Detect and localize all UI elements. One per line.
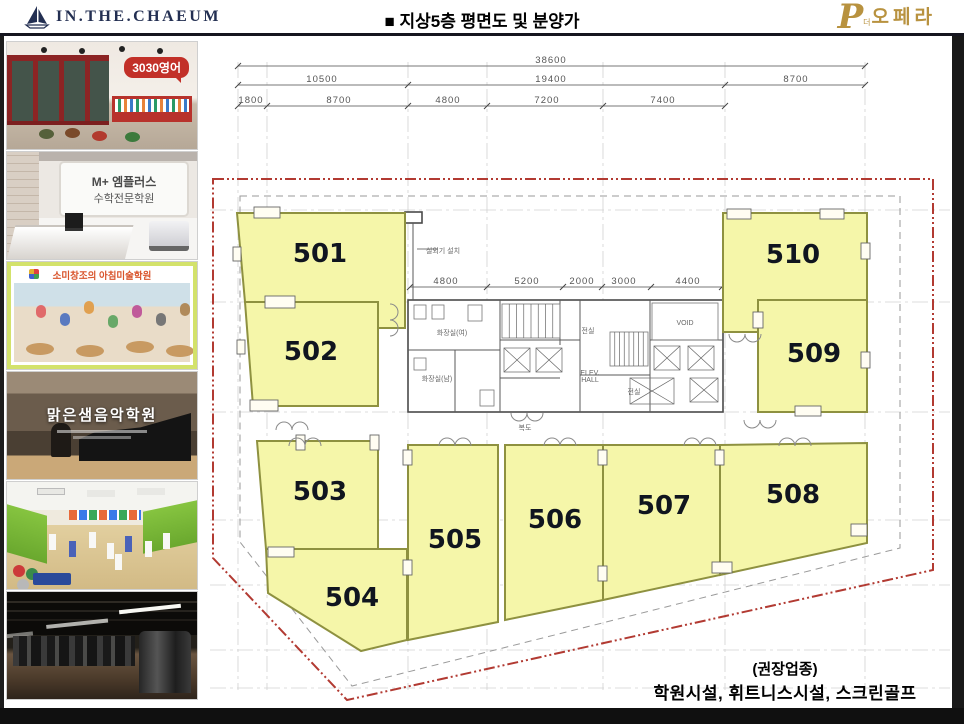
wall-opening — [861, 243, 870, 259]
photo-music-academy: 맑은샘음악학원 — [7, 372, 197, 479]
opera-logo-text: 오페라 — [872, 2, 936, 29]
stools — [65, 128, 80, 138]
unit-507 — [603, 445, 720, 600]
wall-opening — [795, 406, 821, 416]
art-academy-sign: 소미창조의 아침미술학원 — [11, 268, 193, 282]
wall-opening — [296, 435, 305, 450]
dimension-value: 10500 — [306, 74, 337, 85]
photo-taekwondo-studio — [7, 482, 197, 589]
music-academy-sign: 맑은샘음악학원 — [7, 404, 197, 425]
wall-opening — [753, 312, 763, 328]
tables — [26, 343, 54, 355]
plan-label: 전실 — [582, 326, 595, 335]
wall-opening — [370, 435, 379, 450]
gym-machine-large — [139, 631, 191, 693]
door-swing — [744, 420, 776, 428]
wall-stub — [405, 212, 422, 223]
wall-opening — [403, 560, 412, 575]
children-figures — [36, 305, 46, 318]
pianist-silhouette — [51, 423, 71, 457]
plan-label: 화장실(여) — [437, 328, 467, 337]
plan-label: ELEV. — [580, 370, 599, 377]
english-academy-sign: 3030영어 — [124, 57, 189, 78]
wall-opening — [233, 247, 241, 261]
fluorescent-lights — [119, 604, 181, 614]
dimension-value: 4800 — [433, 276, 458, 287]
ceiling-beams — [7, 601, 197, 603]
wall-opening — [250, 400, 278, 411]
header: IN.THE.CHAEUM ■ 지상5층 평면도 및 분양가 P 더 오페라 — [0, 0, 964, 34]
wall-opening — [851, 524, 867, 536]
wall-opening — [265, 296, 295, 308]
math-sign-line1: M+ 엠플러스 — [92, 173, 157, 190]
unit-label-502: 502 — [284, 337, 338, 367]
red-glass-partition — [7, 55, 109, 125]
math-academy-sign: M+ 엠플러스 수학전문학원 — [59, 161, 189, 217]
wall-opening — [861, 352, 870, 368]
posters — [69, 510, 141, 520]
door-swing — [276, 422, 308, 430]
dimension-value: 19400 — [535, 74, 566, 85]
page-title: ■ 지상5층 평면도 및 분양가 — [384, 7, 579, 32]
wall-opening — [403, 450, 412, 465]
unit-label-505: 505 — [428, 525, 482, 555]
frame-edge-bottom — [0, 708, 964, 724]
dimension-value: 3000 — [611, 276, 636, 287]
dimension-value: 4400 — [675, 276, 700, 287]
brand-text: IN.THE.CHAEUM — [56, 8, 221, 26]
music-sign-subtext — [57, 430, 147, 433]
monitor — [65, 213, 83, 231]
wall-opening — [727, 209, 751, 219]
green-wall-left — [7, 504, 47, 563]
header-divider — [0, 33, 964, 36]
photo-art-academy: 소미창조의 아침미술학원 — [7, 262, 197, 369]
slide-root: IN.THE.CHAEUM ■ 지상5층 평면도 및 분양가 P 더 오페라 3… — [0, 0, 964, 724]
plan-label: VOID — [676, 320, 693, 327]
dimension-value: 8700 — [783, 74, 808, 85]
wall-opening — [712, 562, 732, 573]
photo-english-academy: 3030영어 — [7, 42, 197, 149]
unit-label-509: 509 — [787, 339, 841, 369]
dimension-value: 7400 — [650, 95, 675, 106]
wall-opening — [598, 450, 607, 465]
dimension-value: 5200 — [514, 276, 539, 287]
unit-label-501: 501 — [293, 239, 347, 269]
wall-opening — [598, 566, 607, 581]
door-swing — [729, 334, 761, 342]
unit-label-508: 508 — [766, 480, 820, 510]
unit-label-506: 506 — [528, 505, 582, 535]
opera-logo-small: 더 — [863, 17, 870, 28]
wall-opening — [254, 207, 280, 218]
note-line2: 학원시설, 휘트니스시설, 스크린골프 — [620, 679, 950, 704]
green-wall-right — [143, 500, 197, 553]
opera-logo: P 더 오페라 — [838, 0, 936, 32]
dimension-value: 38600 — [535, 55, 566, 66]
math-sign-line2: 수학전문학원 — [94, 190, 155, 206]
ceiling-lights — [37, 488, 65, 495]
plan-label: HALL — [581, 377, 599, 384]
gym-machines-row — [13, 636, 135, 666]
note-line1: (권장업종) — [620, 658, 950, 679]
door-swing — [511, 413, 543, 421]
unit-label-507: 507 — [637, 491, 691, 521]
plan-label: 실외기 설치 — [426, 246, 460, 255]
wall-opening — [715, 450, 724, 465]
unit-label-504: 504 — [325, 583, 379, 613]
printer — [149, 221, 189, 251]
plan-label: 복도 — [519, 424, 532, 432]
wall-opening — [268, 547, 294, 557]
blue-mat — [33, 573, 71, 585]
dimension-value: 4800 — [435, 95, 460, 106]
recommended-note: (권장업종) 학원시설, 휘트니스시설, 스크린골프 — [620, 658, 950, 704]
dimension-value: 7200 — [534, 95, 559, 106]
bookshelf — [112, 96, 192, 122]
wall-opening — [820, 209, 844, 219]
students-figures — [49, 534, 56, 550]
frame-edge-left — [0, 36, 4, 724]
dimension-value: 1800 — [238, 95, 263, 106]
photo-fitness-gym — [7, 592, 197, 699]
wall-opening — [237, 340, 245, 354]
exercise-balls — [13, 565, 25, 577]
track-lights — [41, 47, 47, 53]
sailboat-logo-icon — [24, 4, 50, 30]
plan-label: 화장실(남) — [422, 374, 452, 383]
photo-math-academy: M+ 엠플러스 수학전문학원 — [7, 152, 197, 259]
dimension-value: 8700 — [326, 95, 351, 106]
art-classroom-scene — [14, 283, 190, 362]
frame-edge-right — [952, 36, 964, 724]
unit-label-510: 510 — [766, 240, 820, 270]
brand: IN.THE.CHAEUM — [24, 4, 221, 30]
photo-strip: 3030영어 M+ 엠플러스 수학전문학원 소미창조의 아침미술학원 — [7, 42, 197, 699]
plan-label: 전실 — [628, 387, 641, 396]
floor-plan-svg: 3860010500194008700180087004800720074004… — [205, 40, 955, 708]
opera-logo-p: P — [838, 2, 864, 32]
dimension-value: 2000 — [569, 276, 594, 287]
unit-label-503: 503 — [293, 477, 347, 507]
